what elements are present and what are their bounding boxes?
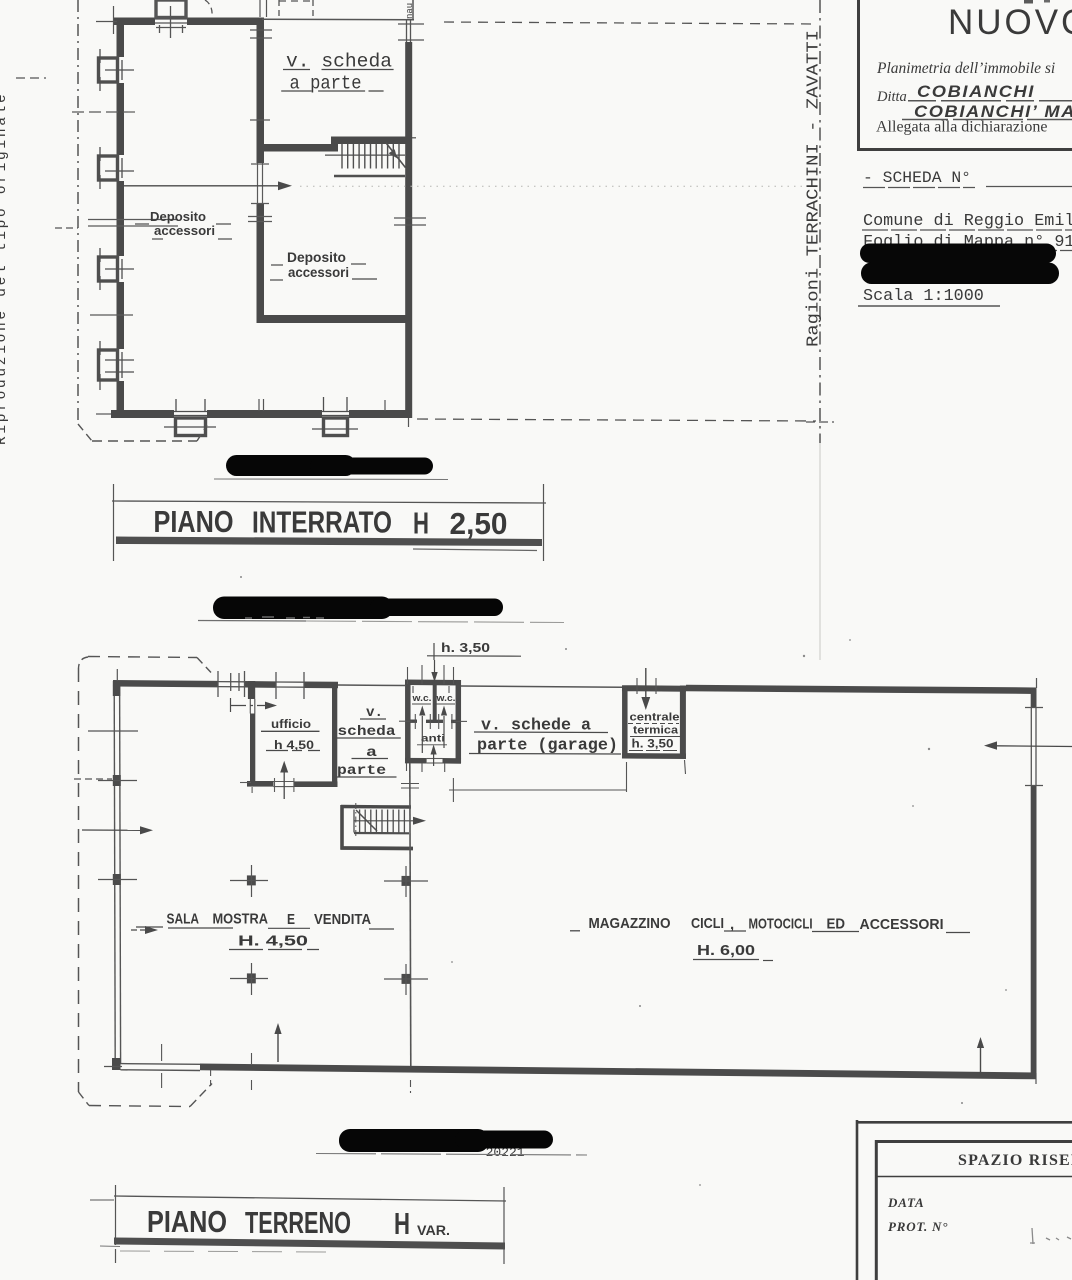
svg-text:DATA: DATA [887, 1195, 924, 1210]
svg-text:nau: nau [405, 3, 415, 19]
svg-text:ufficio: ufficio [271, 719, 311, 731]
svg-text:VAR.: VAR. [417, 1223, 450, 1238]
svg-text:Ditta: Ditta [876, 89, 907, 105]
svg-text:Allegata alla dichiarazione: Allegata alla dichiarazione [876, 119, 1047, 136]
svg-text:PROT. N°: PROT. N° [888, 1219, 948, 1234]
svg-text:h. 3,50: h. 3,50 [441, 640, 490, 655]
svg-text:PIANO: PIANO [147, 1204, 227, 1239]
svg-text:Deposito: Deposito [287, 250, 346, 265]
svg-text:ACCESSORI: ACCESSORI [860, 916, 944, 933]
svg-text:E: E [287, 911, 295, 928]
svg-text:w.c.: w.c. [411, 693, 431, 703]
svg-text:h. 3,50: h. 3,50 [632, 737, 674, 751]
svg-text:NUOVO: NUOVO [948, 3, 1072, 42]
svg-text:Ragioni TERRACHINI - ZAVATTI: Ragioni TERRACHINI - ZAVATTI [805, 30, 824, 347]
svg-text:H: H [394, 1206, 410, 1241]
svg-text:TERRENO: TERRENO [245, 1205, 351, 1240]
svg-text:H. 6,00: H. 6,00 [697, 943, 755, 959]
svg-text:Deposito: Deposito [150, 210, 206, 224]
svg-text:ED: ED [827, 916, 846, 933]
svg-text:SPAZIO RISERVA: SPAZIO RISERVA [958, 1152, 1072, 1169]
svg-text:accessori: accessori [154, 224, 215, 238]
svg-text:w.c.: w.c. [435, 693, 455, 703]
svg-text:MOSTRA: MOSTRA [213, 911, 269, 928]
svg-text:CICLI: CICLI [691, 915, 724, 932]
svg-text:H. 4,50: H. 4,50 [238, 934, 308, 950]
svg-text:Planimetria dell’immobile si: Planimetria dell’immobile si [876, 60, 1055, 77]
svg-text:Riproduzione del tipo original: Riproduzione del tipo originale [0, 92, 10, 445]
svg-text:COBIANCHI: COBIANCHI [917, 82, 1035, 101]
svg-text:INTERRATO: INTERRATO [252, 505, 392, 540]
svg-text:Comune di Reggio Emilia: Comune di Reggio Emilia [863, 212, 1072, 231]
svg-text:SALA: SALA [167, 911, 200, 928]
svg-text:MOTOCICLI: MOTOCICLI [749, 915, 813, 932]
svg-text:parte (garage): parte (garage) [477, 736, 618, 755]
svg-text:accessori: accessori [288, 265, 349, 280]
svg-text:- SCHEDA N°: - SCHEDA N° [863, 169, 971, 187]
svg-text:PIANO: PIANO [154, 504, 234, 539]
svg-text:H: H [413, 506, 429, 541]
svg-text:Scala 1:1000: Scala 1:1000 [863, 287, 984, 306]
svg-text:2,50: 2,50 [450, 506, 508, 541]
svg-text:MAGAZZINO: MAGAZZINO [589, 915, 671, 932]
svg-text:centrale: centrale [630, 712, 680, 724]
svg-text:VENDITA: VENDITA [314, 911, 371, 928]
svg-text:anti: anti [421, 733, 445, 745]
svg-text:termica: termica [633, 725, 679, 737]
